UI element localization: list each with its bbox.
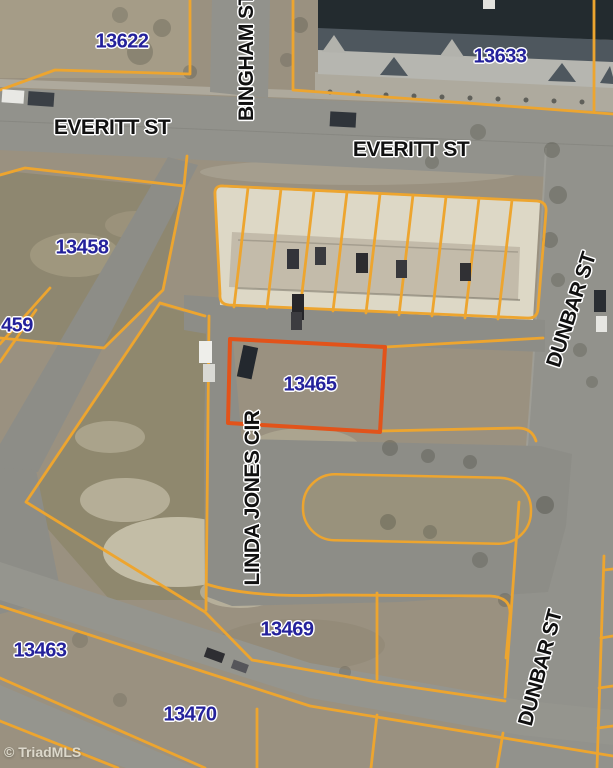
street-label-everitt-west: EVERITT ST bbox=[54, 116, 170, 140]
parcel-label-13633: 13633 bbox=[473, 46, 526, 69]
parcel-label-13458: 13458 bbox=[55, 237, 108, 260]
parcel-label-13470: 13470 bbox=[163, 704, 216, 727]
cul-de-sac-island bbox=[302, 474, 531, 545]
parcel-label-13469: 13469 bbox=[260, 619, 313, 642]
parcel-label-13465: 13465 bbox=[283, 374, 336, 397]
street-label-bingham: BINGHAM ST bbox=[235, 0, 259, 121]
street-label-everitt-east: EVERITT ST bbox=[353, 138, 469, 162]
street-label-linda-jones-cir: LINDA JONES CIR bbox=[241, 411, 265, 586]
parcel-label-13459-partial: 459 bbox=[1, 315, 33, 338]
parcel-label-13463: 13463 bbox=[13, 640, 66, 663]
parcel-label-13622: 13622 bbox=[95, 31, 148, 54]
aerial-parcel-map: 13622 13633 13458 459 13465 13469 13463 … bbox=[0, 0, 613, 768]
triadmls-watermark: © TriadMLS bbox=[4, 744, 81, 760]
